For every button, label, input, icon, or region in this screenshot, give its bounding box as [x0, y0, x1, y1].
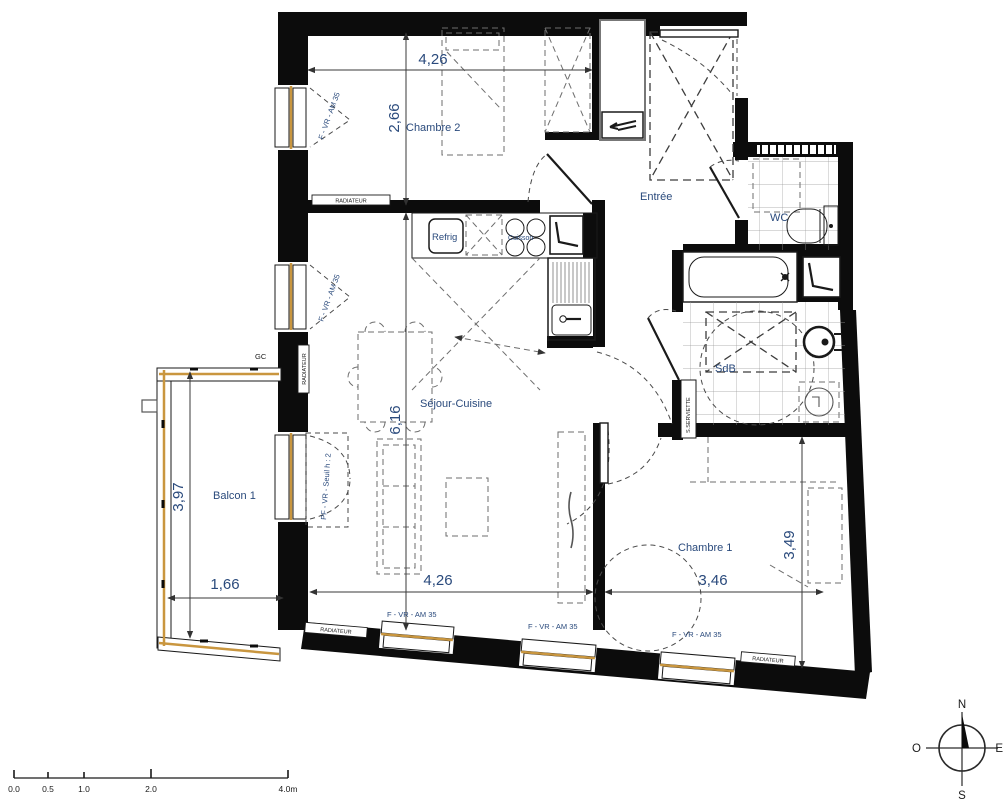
vent-grille: [757, 145, 836, 154]
room-label-balcon: Balcon 1: [213, 490, 256, 502]
chambre1-door-leaf: [600, 423, 608, 483]
compass-east: E: [995, 743, 1003, 755]
refrigerator-label: Refrig: [432, 232, 457, 243]
floor-plan-drawing: RADIATEUR RADIATEUR RADIATEUR RADIATEUR …: [0, 0, 1007, 800]
scale-tick-2: 2.0: [145, 784, 157, 794]
radiator-chambre2: RADIATEUR: [312, 195, 390, 205]
svg-text:RADIATEUR: RADIATEUR: [302, 353, 308, 384]
window-sejour-left: [272, 262, 350, 332]
chambre2-door: [528, 154, 592, 204]
floor-plan-page: RADIATEUR RADIATEUR RADIATEUR RADIATEUR …: [0, 0, 1007, 800]
coffee-table: [446, 478, 488, 536]
compass-west: O: [912, 743, 921, 755]
compass-rose: N S E O: [912, 699, 1003, 800]
sdb-room: [683, 302, 845, 425]
gc-label: GC: [255, 352, 267, 361]
window-label-1: F - VR - AM 35: [316, 91, 341, 141]
scale-tick-0: 0.0: [8, 784, 20, 794]
scale-bar: 0.0 0.5 1.0 2.0 4.0m: [8, 769, 297, 794]
balcony-structure: [142, 368, 281, 661]
tv-outlet-mark: [569, 492, 573, 548]
balcony-door: [272, 432, 350, 527]
room-label-wc: WC: [770, 212, 788, 224]
dim-balcon-width: 1,66: [210, 576, 239, 593]
cooktop-label: Cuisson: [508, 235, 533, 242]
compass-south: S: [958, 790, 966, 800]
room-label-chambre2: Chambre 2: [406, 122, 460, 134]
dim-sejour-height: 6,16: [387, 405, 404, 434]
dim-chambre1-width: 3,46: [698, 572, 727, 589]
room-label-entree: Entrée: [640, 191, 672, 203]
towel-radiator-label: S.SERVIETTE: [686, 397, 692, 433]
technical-shaft: [600, 20, 645, 140]
tv-unit: [558, 432, 585, 603]
window-label-3: F - VR - AM 35: [387, 610, 437, 619]
wardrobe: [808, 488, 842, 583]
wc-door: [710, 160, 739, 218]
svg-text:RADIATEUR: RADIATEUR: [335, 199, 366, 205]
sofa: [377, 439, 421, 574]
dim-chambre2-height: 2,66: [386, 103, 403, 132]
balcony-drain: [142, 400, 157, 412]
compass-north: N: [958, 699, 966, 711]
sdb-door: [648, 310, 679, 380]
kitchen-zone-cross: [412, 258, 540, 390]
scale-tick-1: 1.0: [78, 784, 90, 794]
bathtub: [683, 252, 797, 302]
dim-balcon-height: 3,97: [170, 482, 187, 511]
window-label-2: F - VR - AM 35: [316, 273, 341, 323]
dim-chambre2-width: 4,26: [418, 51, 447, 68]
wc-room: [748, 157, 838, 250]
room-label-sejour: Séjour-Cuisine: [420, 398, 492, 410]
radiator-left-wall: RADIATEUR: [298, 345, 309, 393]
entrance-door: [660, 30, 738, 94]
room-label-chambre1: Chambre 1: [678, 542, 732, 554]
room-label-sdb: SdB: [715, 363, 736, 375]
kitchen-zone-arrow: [455, 337, 545, 353]
kitchen-corner-shaft: [550, 216, 583, 254]
window-label-5: F - VR - AM 35: [672, 630, 722, 639]
hall-door-swings: [567, 352, 672, 524]
balcony-door-label: PF - VR - Seuil h : 2: [319, 453, 333, 520]
sdb-shaft: [803, 257, 840, 297]
sejour-furniture: [348, 322, 585, 603]
dim-chambre1-height: 3,49: [781, 530, 798, 559]
window-label-4: F - VR - AM 35: [528, 622, 578, 631]
kitchen-sink: [548, 258, 595, 340]
compass-needle-icon: [962, 714, 969, 748]
entree-closet: [650, 32, 733, 180]
dim-sejour-width: 4,26: [423, 572, 452, 589]
scale-tick-05: 0.5: [42, 784, 54, 794]
scale-tick-4m: 4.0m: [279, 784, 298, 794]
